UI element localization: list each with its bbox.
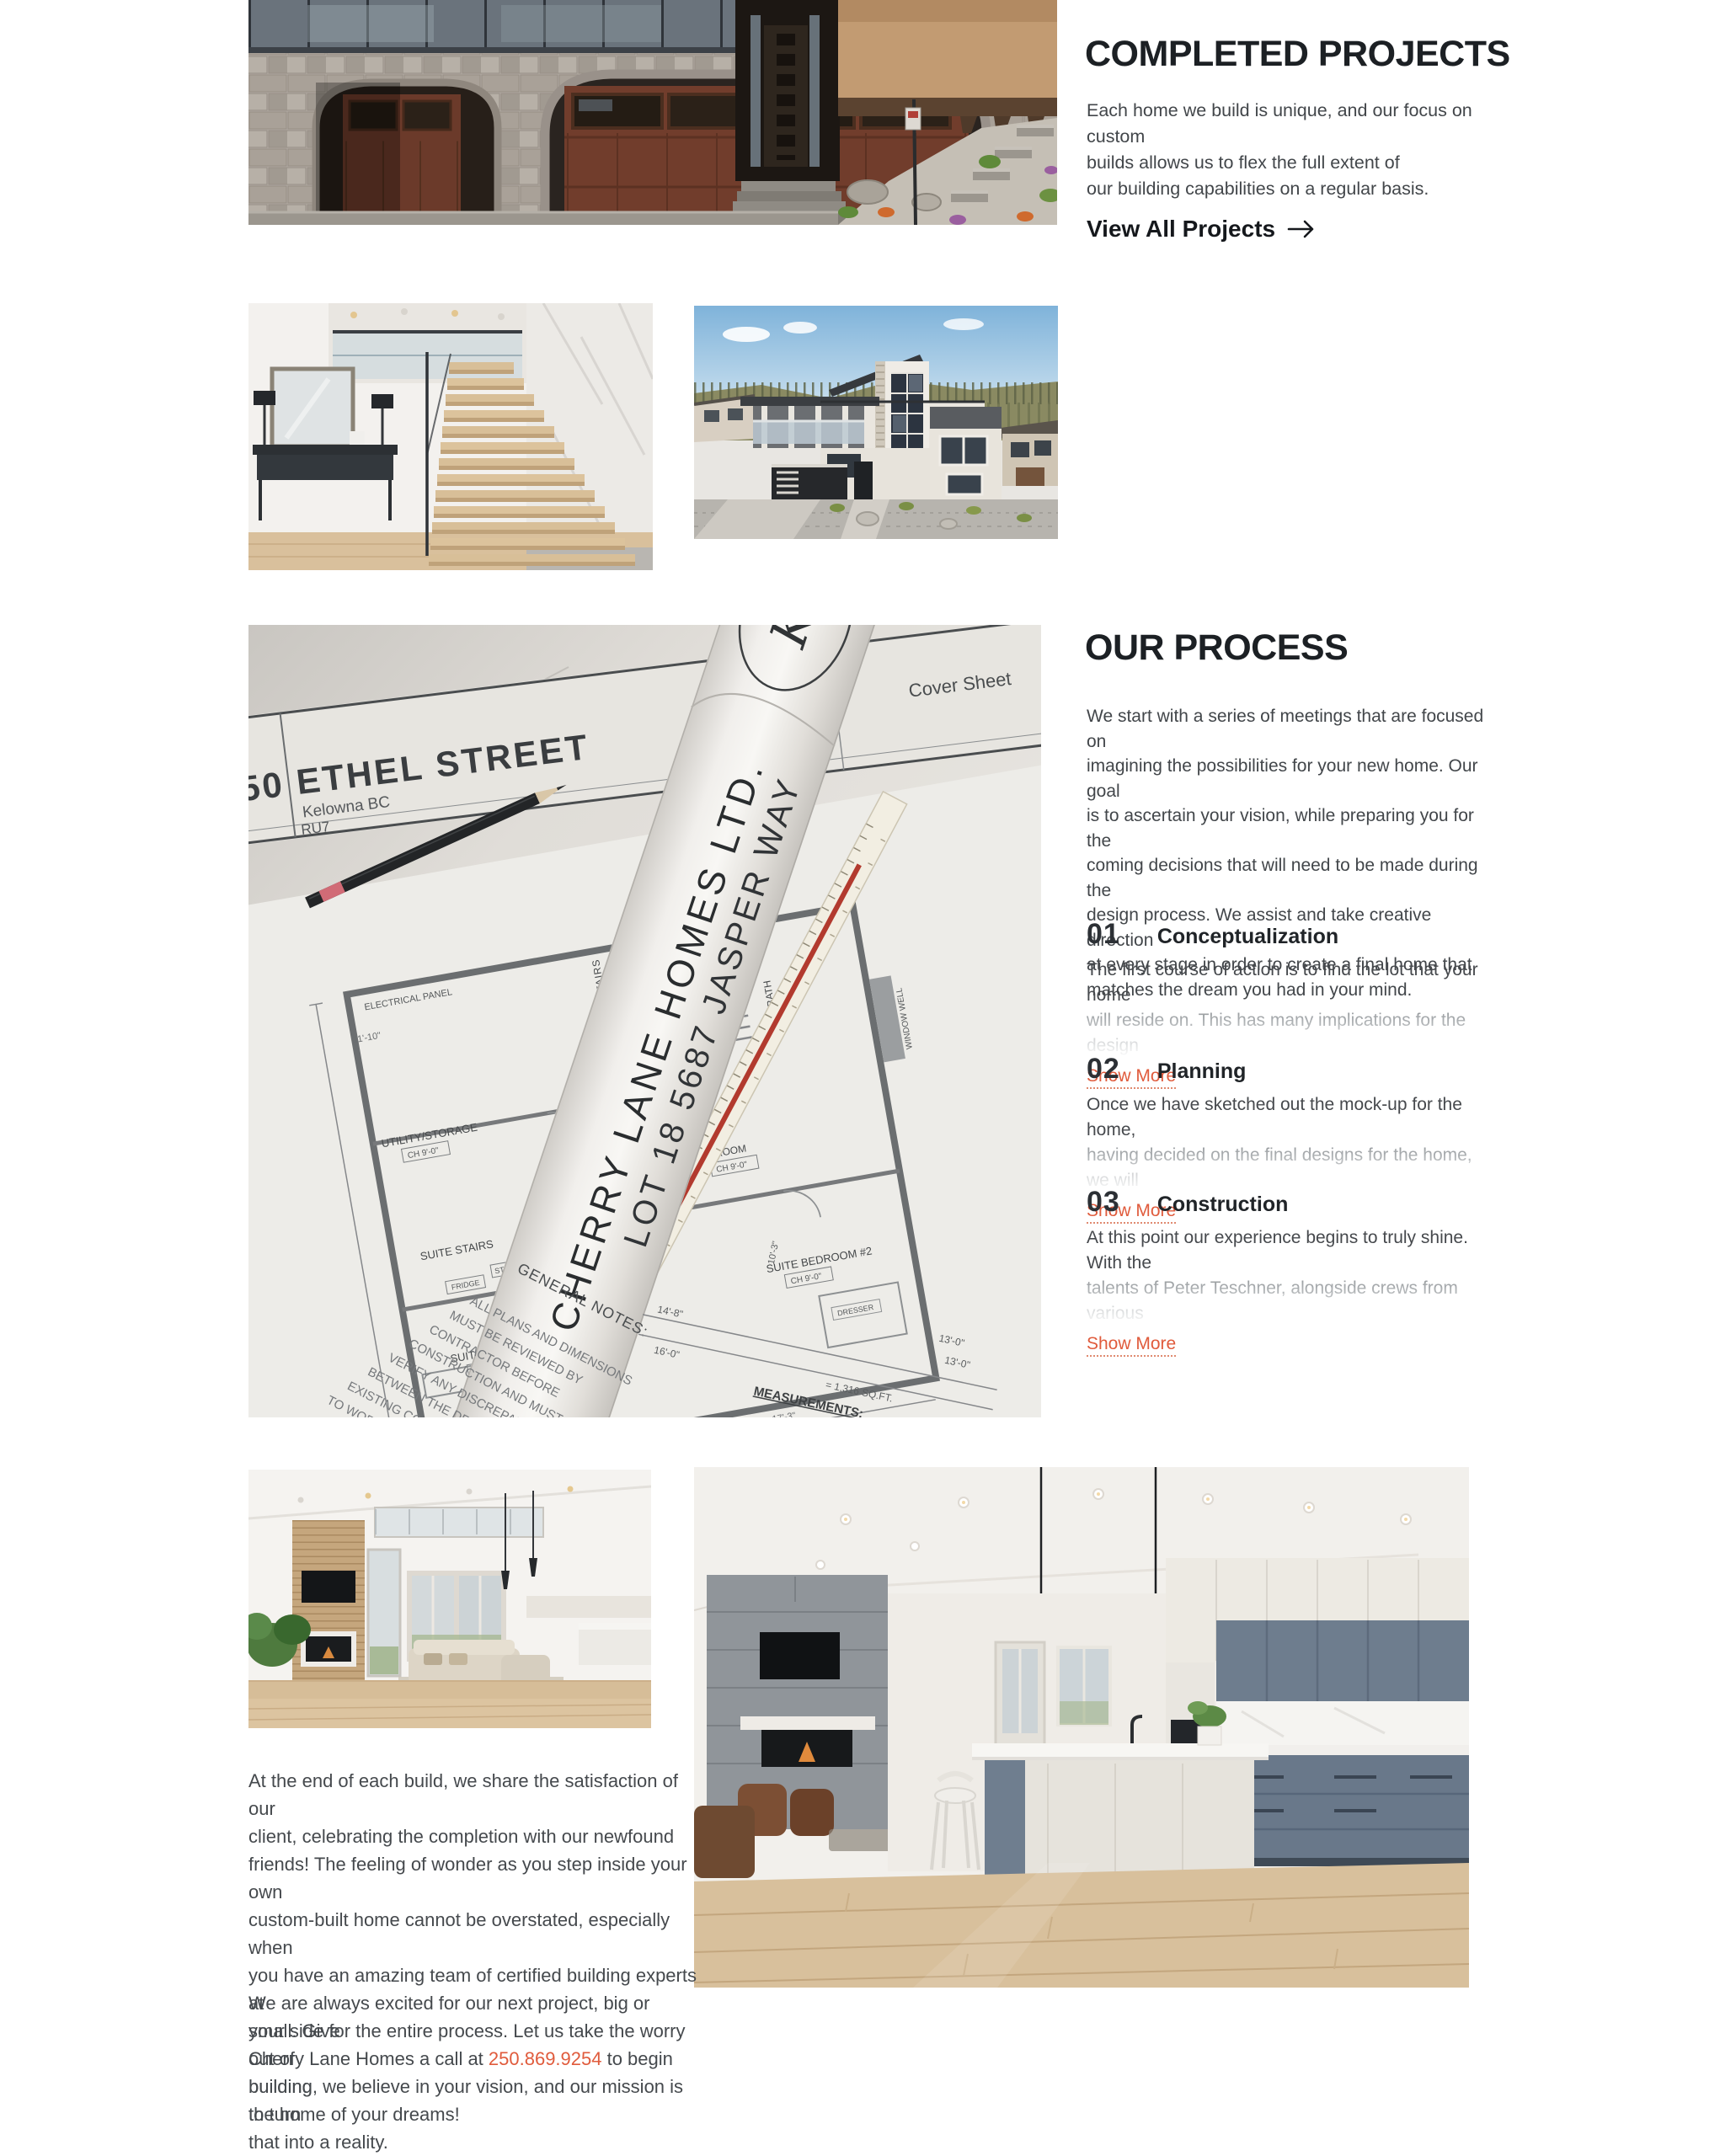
closing-cta-line2: Cherry Lane Homes a call at 250.869.9254… [248,2045,703,2100]
step-title: Construction [1157,1193,1289,1217]
modern-home-photo [694,306,1058,539]
step-teaser-line1: At this point our experience begins to t… [1087,1225,1491,1276]
page: 5630 [0,0,1720,2156]
step-teaser-line1: Once we have sketched out the mock-up fo… [1087,1092,1491,1143]
closing-cta-line3: the home of your dreams! [248,2100,703,2128]
staircase-illustration [248,303,653,570]
closing-cta-paragraph: We are always excited for our next proje… [248,1989,703,2128]
kitchen-illustration [694,1467,1469,1988]
arrow-right-icon [1287,218,1316,240]
staircase-photo [248,303,653,570]
step-title: Planning [1157,1059,1247,1084]
show-more-link[interactable]: Show More [1087,1334,1176,1357]
process-line: imagining the possibilities for your new… [1087,754,1491,803]
description-line: our building capabilities on a regular b… [1087,176,1482,202]
process-line: is to ascertain your vision, while prepa… [1087,803,1491,853]
closing-line: friends! The feeling of wonder as you st… [248,1850,703,1906]
hero-house-photo: 5630 [248,0,1057,225]
view-all-projects-label: View All Projects [1087,216,1275,243]
closing-cta-line1: We are always excited for our next proje… [248,1989,703,2045]
closing-line: that into a reality. [248,2128,703,2156]
kitchen-photo [694,1467,1469,1988]
description-line: Each home we build is unique, and our fo… [1087,98,1482,150]
step-teaser-line1: The first course of action is to find th… [1087,958,1491,1008]
completed-projects-description: Each home we build is unique, and our fo… [1087,98,1482,202]
step-number: 02 [1087,1053,1120,1086]
completed-projects-title: COMPLETED PROJECTS [1085,34,1510,75]
living-room-illustration [248,1470,651,1728]
closing-line: At the end of each build, we share the s… [248,1767,703,1822]
process-line: coming decisions that will need to be ma… [1087,853,1491,903]
step-teaser-line2: will reside on. This has many implicatio… [1087,1008,1491,1059]
closing-line: custom-built home cannot be overstated, … [248,1906,703,1961]
modern-home-illustration [694,306,1058,539]
step-teaser-line2: talents of Peter Teschner, alongside cre… [1087,1276,1491,1326]
process-line: We start with a series of meetings that … [1087,704,1491,754]
process-title: OUR PROCESS [1085,627,1348,669]
closing-line: client, celebrating the completion with … [248,1822,703,1850]
phone-link[interactable]: 250.869.9254 [489,2048,602,2069]
step-title: Conceptualization [1157,925,1338,949]
cta-before: Cherry Lane Homes a call at [248,2048,489,2069]
process-step-construction: 03 Construction At this point our experi… [1087,1186,1491,1357]
hero-house-illustration: 5630 [248,0,1057,225]
living-room-photo [248,1470,651,1728]
description-line: builds allows us to flex the full extent… [1087,150,1482,176]
view-all-projects-link[interactable]: View All Projects [1087,216,1316,243]
blueprint-illustration: ELECTRICAL PANEL 11'-10" 4'-6" UTILITY/S… [248,625,1041,1417]
blueprint-photo: ELECTRICAL PANEL 11'-10" 4'-6" UTILITY/S… [248,625,1041,1417]
step-number: 03 [1087,1186,1120,1219]
step-number: 01 [1087,918,1120,951]
